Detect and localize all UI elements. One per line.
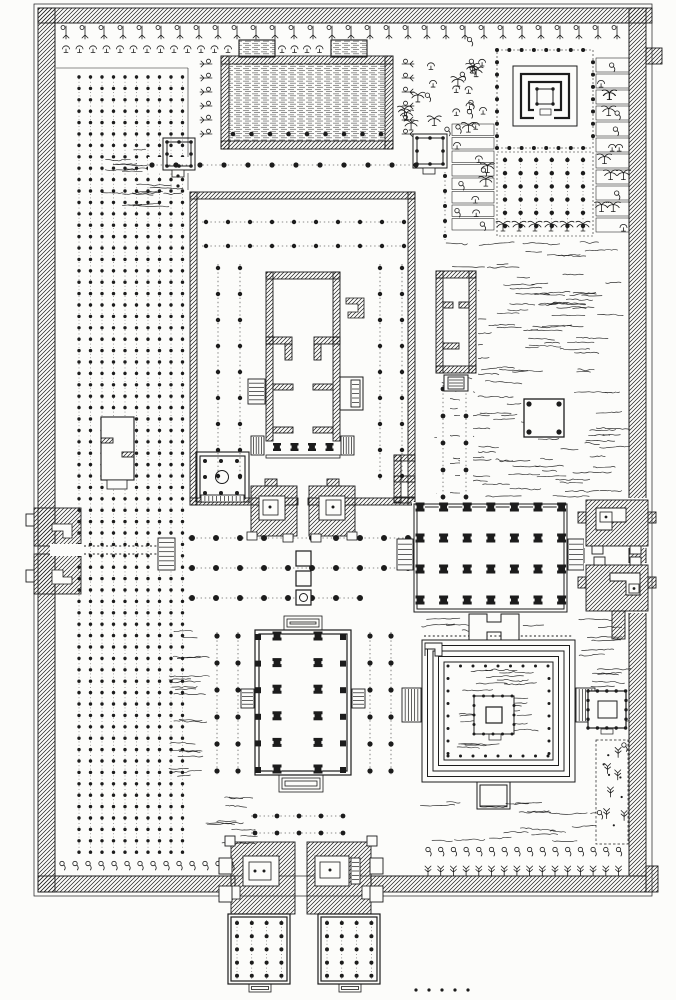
inner-gate-east-foot-b [347,532,357,540]
east-gate-north [586,500,648,546]
inner-gate-east-foot-a [311,534,321,542]
magazine-partition-1w [443,302,453,308]
inner-gate-east-stub [327,479,339,486]
temple-complex-plan [0,0,676,1000]
inner-gate-west-dot [269,506,272,509]
sanctuary-wall-right [333,272,340,344]
south-gate-east-dot [329,869,332,872]
magazine-partition-1e [459,302,469,308]
east-gate-south-foot-a [594,557,605,565]
porch-step-west [251,436,264,455]
temple-enclosure-top [190,192,415,199]
sanctuary-wall-left [266,272,273,344]
inner-gate-west-foot-a [247,532,257,540]
south-wall-cell-b [219,886,232,902]
temple-west-stair [248,379,265,404]
east-gate-south-stub-e [648,577,656,588]
ziggurat-summit [474,696,514,734]
enclosure-se-room-b [394,476,415,482]
west-gate-stub-north [26,514,34,526]
inner-gate-west-foot-b [283,534,293,542]
east-gate-south-dot [633,587,636,590]
south-wall-cell-a [219,858,232,874]
axis-altar-3 [296,590,311,605]
south-gate-east-stair [351,858,360,884]
pylon-wall-bottom [221,141,393,149]
inner-gate-west-stub [265,479,277,486]
east-kiosk-pedestal [423,168,435,174]
magazine-partition-2 [443,343,459,349]
enclosure-wall-right [629,8,646,876]
temple-east-annex-stair [351,380,360,407]
east-gate-north-foot-a [592,546,603,554]
plan-drawing [0,0,676,1000]
enclosure-wall-left [38,8,55,892]
pillared-hall-stair-east [568,539,584,570]
pylon-wall-right [385,56,393,149]
east-gate-south-stem [612,611,625,639]
sanctuary-door-stub-west [285,344,292,360]
axis-altar-1 [296,551,311,566]
grove-shrine-stub-east [122,452,134,457]
pylon-interior [229,64,385,141]
sanctuary-wall-top [266,272,340,279]
west-gate-passage [50,544,82,556]
pylon-bastion-east [331,40,367,57]
south-gate-west-room [243,856,279,886]
pylon-bastion-west [239,40,275,57]
east-gate-south-foot-b [630,557,641,565]
enclosure-wall-bottom-right [371,876,646,892]
south-gate-west-foot [225,836,235,846]
magazine-wall-left [436,271,443,373]
temple-wall-mid-right [333,337,340,441]
pylon-wall-left [221,56,229,149]
sanctuary-door-stub-east [314,344,321,360]
enclosure-se-room-a [394,455,415,461]
magazine-annex-steps [448,377,464,389]
south-hall-step-east [352,689,365,708]
grove-shrine-stub-west [101,438,113,443]
well-pavilion-steps [201,495,244,502]
wall-footing-southeast [646,866,658,892]
south-wall-cell-c [370,858,383,874]
south-gate-west-dot-a [254,870,257,873]
temple-crosswall-1-east [313,384,333,390]
axis-altar-2 [296,571,311,586]
pillared-hall-stair-west [397,539,413,570]
east-gate-north-dot [605,516,608,519]
east-gate-north-stub-w [578,512,586,523]
temple-crosswall-1-west [273,384,293,390]
wall-spur-northeast [646,48,662,64]
east-gate-north-foot-b [630,546,641,554]
enclosure-wall-bottom-left [38,876,235,892]
east-gate-north-stub-e [648,512,656,523]
magazine-wall-right [469,271,476,373]
south-wall-cell-d [370,886,383,902]
temple-wall-mid-left [266,337,273,441]
labyrinth-pedestal [540,109,551,115]
enclosure-wall-top [38,8,652,23]
south-hall-step-west [241,689,254,708]
temple-crosswall-2-east [313,427,333,433]
south-gate-west-dot-b [263,870,266,873]
grove-shrine-pedestal [107,480,127,489]
temple-crosswall-2-west [273,427,293,433]
east-gate-south-stub-w [578,577,586,588]
east-pavilion [588,691,626,728]
grove-shrine [101,417,134,480]
west-court-stair [158,538,175,570]
inner-gate-east-dot [332,506,335,509]
ziggurat-stair-west [402,688,421,722]
enclosure-se-room-c [394,497,415,503]
magazine-wall-bottom [436,366,476,373]
west-gate-stub-south [26,570,34,582]
porch-step-east [341,436,354,455]
south-gate-east-foot [367,836,377,846]
